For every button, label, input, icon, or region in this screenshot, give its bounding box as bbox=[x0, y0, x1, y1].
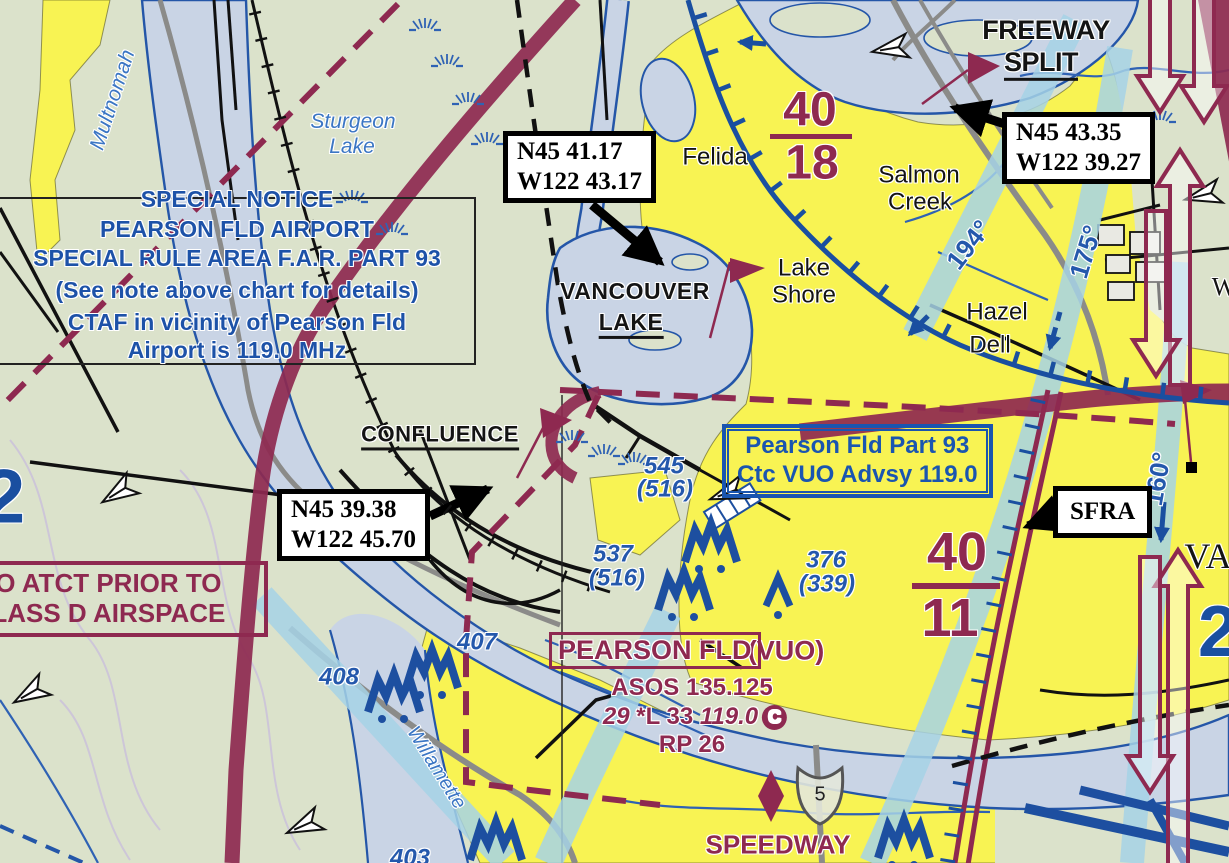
sectional-chart: SPECIAL NOTICE PEARSON FLD AIRPORT SPECI… bbox=[0, 0, 1229, 863]
label-salmon: Salmon bbox=[878, 162, 959, 187]
part93-line1: Pearson Fld Part 93 bbox=[737, 432, 978, 461]
airport-lighting: *L bbox=[636, 703, 660, 730]
mef-se-denominator: 11 bbox=[921, 587, 978, 649]
no-atct-line2: CLASS D AIRSPACE bbox=[0, 599, 258, 629]
label-lake: Lake bbox=[778, 255, 830, 280]
callout-vancouver-lake-coords: N45 41.17 W122 43.17 bbox=[503, 131, 656, 203]
obstacle-537-agl: (516) bbox=[589, 565, 645, 590]
no-atct-line1: NO ATCT PRIOR TO bbox=[0, 569, 258, 599]
label-felida: Felida bbox=[682, 144, 747, 169]
notice-line-2: PEARSON FLD AIRPORT bbox=[100, 217, 374, 241]
notice-line-1: SPECIAL NOTICE bbox=[141, 187, 334, 211]
label-w-partial: W bbox=[1212, 273, 1229, 300]
callout-confluence-coords: N45 39.38 W122 45.70 bbox=[277, 489, 430, 561]
label-dell: Dell bbox=[969, 332, 1010, 357]
airport-name-box: PEARSON FLD bbox=[549, 632, 761, 669]
obstacle-407: 407 bbox=[457, 629, 497, 654]
interstate-shield-number: 5 bbox=[814, 785, 825, 806]
label-freeway: FREEWAY bbox=[982, 16, 1110, 44]
notice-line-6: Airport is 119.0 MHz bbox=[128, 338, 347, 362]
partial-number-left: 2 bbox=[0, 454, 25, 541]
airport-rp: RP 26 bbox=[659, 731, 725, 759]
label-shore: Shore bbox=[772, 282, 836, 307]
airport-data-line: 29 *L 33 119.0C bbox=[603, 703, 787, 731]
partial-number-right: 2 bbox=[1198, 591, 1229, 673]
part93-line2: Ctc VUO Advsy 119.0 bbox=[737, 461, 978, 490]
label-va-partial: VA bbox=[1184, 538, 1229, 576]
obstacle-537: 537 bbox=[593, 541, 633, 566]
obstacle-408: 408 bbox=[319, 664, 359, 689]
callout-freeway-split-coords: N45 43.35 W122 39.27 bbox=[1002, 112, 1155, 184]
mef-nw-numerator: 40 bbox=[783, 83, 836, 138]
notice-line-4: (See note above chart for details) bbox=[56, 278, 419, 302]
label-sturgeon-1: Sturgeon bbox=[310, 111, 395, 133]
mef-se-numerator: 40 bbox=[927, 521, 987, 583]
label-split: SPLIT bbox=[1004, 48, 1078, 76]
ctaf-circle-icon: C bbox=[762, 705, 787, 730]
obstacle-376: 376 bbox=[806, 547, 846, 572]
label-speedway: SPEEDWAY bbox=[706, 831, 851, 858]
obstacle-376-agl: (339) bbox=[799, 571, 855, 596]
airport-ctaf: 119.0 bbox=[700, 703, 758, 730]
notice-line-5: CTAF in vicinity of Pearson Fld bbox=[68, 310, 406, 334]
label-vancouver-lake-2: LAKE bbox=[599, 310, 664, 334]
label-hazel: Hazel bbox=[966, 299, 1027, 324]
mef-nw-denominator: 18 bbox=[785, 136, 838, 191]
obstacle-545-agl: (516) bbox=[637, 476, 693, 501]
label-vancouver-lake-1: VANCOUVER bbox=[560, 279, 710, 303]
label-confluence: CONFLUENCE bbox=[361, 422, 519, 445]
label-sturgeon-2: Lake bbox=[329, 136, 375, 158]
airport-elevation: 29 bbox=[603, 703, 630, 730]
obstacle-403: 403 bbox=[390, 845, 430, 863]
airport-asos: ASOS 135.125 bbox=[611, 674, 772, 702]
part93-advisory-box: Pearson Fld Part 93 Ctc VUO Advsy 119.0 bbox=[722, 424, 993, 498]
label-creek: Creek bbox=[888, 189, 952, 214]
notice-line-3: SPECIAL RULE AREA F.A.R. PART 93 bbox=[33, 246, 441, 270]
airport-runway-length: 33 bbox=[666, 703, 693, 730]
no-atct-box: NO ATCT PRIOR TO CLASS D AIRSPACE bbox=[0, 561, 268, 637]
callout-sfra: SFRA bbox=[1053, 486, 1152, 538]
